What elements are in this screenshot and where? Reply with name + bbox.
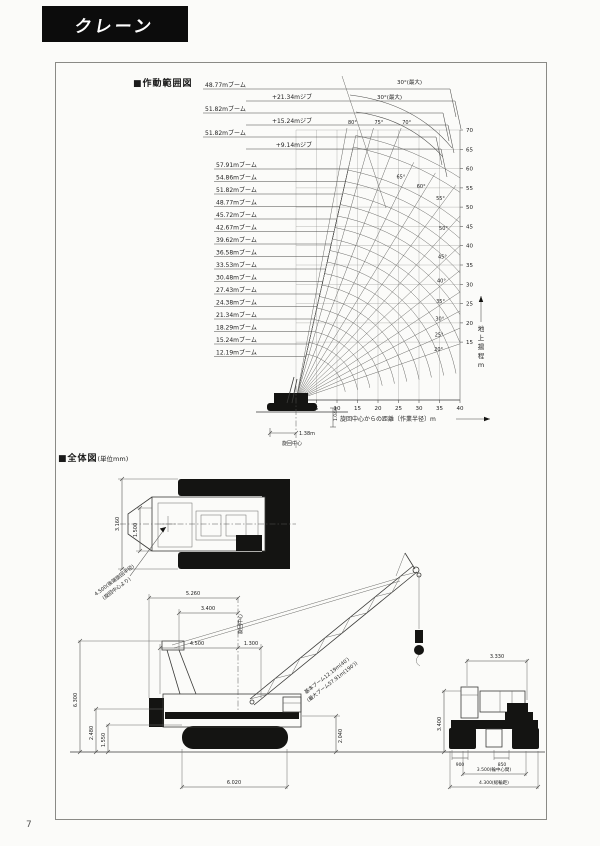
jib-label-leader xyxy=(443,113,449,141)
y-axis-title-char: 程 xyxy=(478,351,485,360)
boom-length-label: 33.53mブーム xyxy=(216,261,257,269)
pendant-rope xyxy=(174,581,400,648)
side-body xyxy=(163,694,301,727)
x-axis-title: 旋回中心からの距離〔作業半径〕m xyxy=(340,415,436,423)
boom-angle-label: 60° xyxy=(417,184,426,190)
jib-combination-arc xyxy=(356,136,460,178)
y-axis-tick-label: 65 xyxy=(466,147,473,153)
boom-angle-label: 35° xyxy=(436,299,445,305)
boom-length-label: 15.24mブーム xyxy=(216,336,257,344)
jib-config-boom-label: 51.82mブーム xyxy=(205,105,246,113)
y-axis-tick-label: 30 xyxy=(466,282,473,288)
rear-carbody xyxy=(451,720,538,729)
boom-angle-label: 40° xyxy=(437,278,446,284)
jib-combination-arc xyxy=(353,147,460,192)
side-track xyxy=(182,726,288,749)
x-axis-tick-label: 40 xyxy=(457,406,464,412)
y-axis-title-char: 揚 xyxy=(478,342,485,351)
y-axis-tick-label: 55 xyxy=(466,186,473,192)
x-axis-tick-label: 15 xyxy=(354,406,361,412)
boom-angle-label: 55° xyxy=(436,196,445,202)
max-offset-label: 30°(最大) xyxy=(397,78,422,86)
boom-length-label: 54.86mブーム xyxy=(216,174,257,182)
y-axis-tick-label: 45 xyxy=(466,224,473,230)
boom-label-leader xyxy=(319,294,320,297)
plan-body-detail-black xyxy=(236,535,262,551)
y-axis-arrowhead xyxy=(479,296,483,302)
max-offset-label: 30°(最大) xyxy=(377,93,402,101)
y-axis-tick-label: 70 xyxy=(466,128,473,134)
catalog-page: クレーン ■作動範囲図 ■全体図(単位mm) 51015202530354015… xyxy=(0,0,600,846)
boom-length-label: 27.43mブーム xyxy=(216,286,257,294)
y-axis-tick-label: 40 xyxy=(466,244,473,250)
jib-label-leader xyxy=(436,137,442,165)
boom-length-label: 30.48mブーム xyxy=(216,274,257,282)
boom-length-label: 36.58mブーム xyxy=(216,249,257,257)
boom-length-label: 48.77mブーム xyxy=(216,199,257,207)
boom-angle-label: 50° xyxy=(439,226,448,232)
plan-overall-width-label: 3.160 xyxy=(115,517,121,531)
boom-length-arc xyxy=(317,308,395,384)
boom-label-leader xyxy=(340,194,342,205)
boom-length-label: 57.91mブーム xyxy=(216,161,257,169)
dim-5260-label: 5.260 xyxy=(186,591,200,597)
tail-radius-label: 1.38m xyxy=(299,431,315,437)
rear-track-left xyxy=(449,728,476,749)
dim-4300-label: 4.300(総輪距) xyxy=(479,779,509,786)
rear-cab xyxy=(461,687,478,718)
chart-base-body xyxy=(274,393,308,404)
jib-config-jib-label: +21.34mジブ xyxy=(272,93,312,101)
x-axis-tick-label: 35 xyxy=(436,406,443,412)
x-axis-arrowhead xyxy=(484,417,490,421)
side-swing-center-label: 旋回中心 xyxy=(237,614,244,634)
boom-length-label: 42.67mブーム xyxy=(216,224,257,232)
boom-label-leader xyxy=(306,354,307,357)
x-axis-tick-label: 30 xyxy=(416,406,423,412)
boom-length-label: 39.62mブーム xyxy=(216,236,257,244)
dim-3500-label: 3.500(輪中心間) xyxy=(477,766,512,773)
boom-angle-label: 25° xyxy=(435,333,444,339)
jib-label-leader xyxy=(448,125,454,153)
side-counterweight xyxy=(149,698,164,727)
boom-length-arc xyxy=(322,285,419,380)
side-gantry-leg xyxy=(167,650,180,694)
jib-config-boom-label: 48.77mブーム xyxy=(205,81,246,89)
hook xyxy=(416,655,420,666)
jib-config-jib-label: +15.24mジブ xyxy=(272,117,312,125)
dim-4500-label: 4.500 xyxy=(190,641,204,647)
boom-angle-label: 65° xyxy=(396,174,405,180)
x-axis-tick-label: 25 xyxy=(395,406,402,412)
boom-label-leader xyxy=(343,182,346,194)
dim-1550-label: 1.550 xyxy=(101,733,107,747)
side-body-band xyxy=(165,712,299,719)
boom-angle-label: 30° xyxy=(435,317,444,323)
dim-1300-label: 1.300 xyxy=(244,641,258,647)
boom-length-label: 12.19mブーム xyxy=(216,349,257,357)
boom-length-label: 45.72mブーム xyxy=(216,211,257,219)
dim-2480-label: 2.480 xyxy=(89,726,95,740)
y-axis-title-char: m xyxy=(478,361,484,369)
y-axis-tick-label: 60 xyxy=(466,167,473,173)
dim-6300-label: 6.300 xyxy=(73,693,79,707)
technical-drawing-svg: 5101520253035401520253035404550556065702… xyxy=(0,0,600,846)
dim-3400-label: 3.400 xyxy=(201,606,215,612)
rear-track-right xyxy=(512,728,539,749)
boom-label-leader xyxy=(330,244,331,251)
jib-config-jib-label: +9.14mジブ xyxy=(276,141,312,149)
y-axis-title-char: 地 xyxy=(478,324,485,333)
boom-length-arc xyxy=(314,320,382,386)
y-axis-tick-label: 20 xyxy=(466,321,473,327)
boom-length-label: 24.38mブーム xyxy=(216,299,257,307)
foot-height-label: 1.04m xyxy=(333,407,339,421)
dim-6020-label: 6.020 xyxy=(227,780,241,786)
boom-length-label: 18.29mブーム xyxy=(216,324,257,332)
rear-center-frame xyxy=(486,729,502,747)
plan-tail-note: 4.500(後端旋回半径)(旋回中心より) xyxy=(93,563,141,604)
hook-ball xyxy=(414,645,424,655)
boom-length-label: 21.34mブーム xyxy=(216,311,257,319)
boom-length-arc xyxy=(330,251,456,374)
dim-2040-label: 2.040 xyxy=(338,729,344,743)
boom-chord xyxy=(254,572,417,705)
boom-length-label: 51.82mブーム xyxy=(216,186,257,194)
y-axis-tick-label: 25 xyxy=(466,302,473,308)
x-axis-tick-label: 20 xyxy=(375,406,382,412)
chart-base-track xyxy=(267,403,317,411)
boom-head-mast xyxy=(405,553,415,569)
boom-note: 基本ブーム12.19m(40′)(最大ブーム57.91m(190′)) xyxy=(301,653,360,703)
boom-label-leader xyxy=(332,232,334,240)
y-axis-title-char: 上 xyxy=(478,333,485,342)
plan-body-width-label: 1.500 xyxy=(133,523,139,537)
jib-label-leader xyxy=(455,101,461,129)
boom-label-leader xyxy=(327,257,328,263)
page-number: 7 xyxy=(26,820,32,830)
swing-center-label: 旋回中心 xyxy=(282,440,302,447)
jib-label-leader xyxy=(450,89,456,117)
boom-label-leader xyxy=(322,282,323,286)
jib-label-leader xyxy=(441,149,447,177)
side-cab xyxy=(283,697,301,712)
radial-angle-line xyxy=(296,162,414,400)
boom-label-leader xyxy=(345,169,348,182)
jib-offset-arc xyxy=(356,112,443,157)
boom-label-leader xyxy=(338,207,340,217)
side-gantry-leg xyxy=(179,650,196,694)
y-axis-tick-label: 35 xyxy=(466,263,473,269)
y-axis-tick-label: 15 xyxy=(466,340,473,346)
boom-foot-pin xyxy=(250,700,254,704)
rear-dim-3400-label: 3.400 xyxy=(437,717,443,731)
boom-note-line2: (最大ブーム57.91m(190′)) xyxy=(305,660,359,704)
jib-config-boom-label: 51.82mブーム xyxy=(205,129,246,137)
hook-block xyxy=(415,630,423,643)
dim-3330-label: 3.330 xyxy=(490,654,504,660)
boom-label-leader xyxy=(325,269,326,274)
y-axis-tick-label: 50 xyxy=(466,205,473,211)
boom-head-stay xyxy=(396,553,405,576)
